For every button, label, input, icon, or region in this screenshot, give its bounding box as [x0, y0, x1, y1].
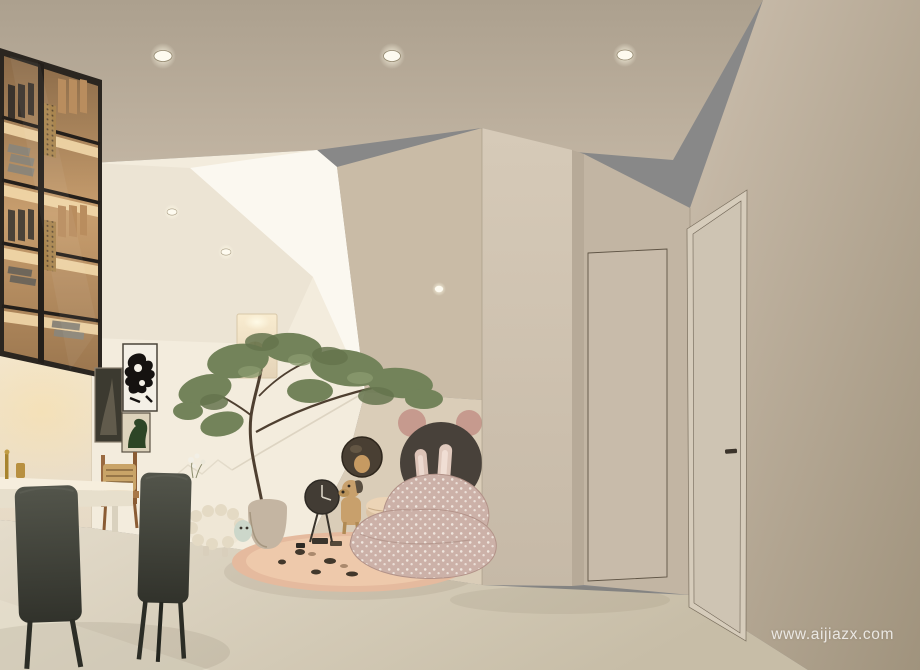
structural-column [482, 128, 584, 586]
round-wall-mirror [342, 437, 382, 477]
sheep-eye [240, 527, 243, 530]
interior-render-image: www.aijiazx.com [0, 0, 920, 670]
column-front-face [482, 128, 572, 586]
recessed-light [150, 43, 176, 69]
wall-spotlight [432, 282, 446, 296]
door-leaf [693, 201, 741, 633]
recessed-light [164, 204, 180, 220]
door-handle [725, 449, 737, 454]
concealed-door-panel [588, 249, 667, 581]
artwork-green-abstract [122, 413, 150, 452]
hallway-wall [584, 154, 690, 595]
ceiling [0, 0, 763, 163]
table-leg [112, 506, 118, 532]
scene-canvas [0, 0, 920, 670]
recessed-light [218, 244, 234, 260]
mirror-toy-reflection [354, 455, 370, 473]
sheep-face [234, 520, 252, 542]
recessed-light [379, 43, 405, 69]
entry-door [687, 190, 747, 641]
watermark: www.aijiazx.com [771, 626, 894, 644]
chair-back [14, 485, 82, 623]
sheep-eye [246, 527, 249, 530]
recessed-light [613, 43, 637, 67]
glass-bookshelf [0, 48, 102, 378]
niche-light [244, 314, 270, 330]
dog-eye [348, 485, 351, 488]
chair-back [137, 472, 191, 603]
column-side-face [572, 150, 584, 586]
artwork-dark [95, 368, 122, 442]
artwork-black-abstract [123, 344, 157, 411]
